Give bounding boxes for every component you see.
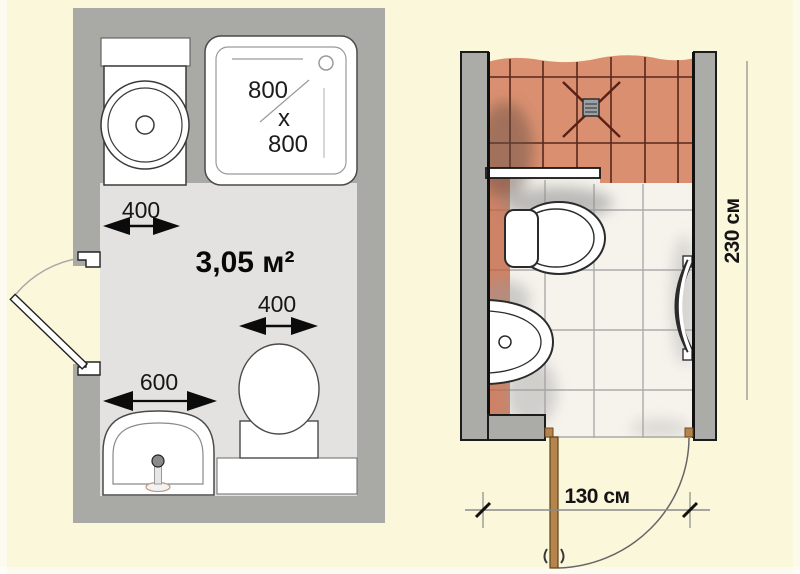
shower-size-x-label: x [278, 105, 290, 132]
toilet-cistern [505, 210, 538, 267]
door-leaf [550, 437, 558, 568]
bathroom-floor-plans: 800 x 800 [0, 0, 800, 574]
washing-machine [101, 38, 190, 185]
shower-size-width-label: 800 [248, 77, 288, 104]
dim-room-depth-label: 230 см [721, 198, 744, 263]
door-hinge-jamb [545, 428, 553, 437]
toilet [505, 202, 605, 274]
dim-toilet-width-label: 400 [258, 291, 296, 317]
washbasin [103, 411, 214, 495]
door-opening [73, 266, 100, 364]
toilet-ledge [217, 458, 357, 494]
stub-wall [488, 415, 545, 440]
shower-drain-icon [319, 56, 333, 70]
room-area-label: 3,05 м² [196, 246, 295, 279]
shower-size-depth-label: 800 [268, 131, 308, 158]
plans-svg: 800 x 800 [0, 0, 800, 574]
dim-basin-width-label: 600 [140, 369, 178, 395]
right-plan-wall-left [461, 52, 488, 440]
toilet [239, 344, 319, 458]
page-edge-right [793, 0, 800, 574]
shower-tray: 800 x 800 [205, 36, 357, 185]
page-edge-bottom [0, 567, 800, 574]
right-plan-wall-right [694, 52, 716, 440]
dim-door-width-label: 130 см [564, 485, 629, 508]
shower-screen [486, 168, 600, 178]
faucet-icon [499, 336, 511, 348]
page-edge-left [0, 0, 7, 574]
door-strike-jamb [685, 428, 693, 437]
